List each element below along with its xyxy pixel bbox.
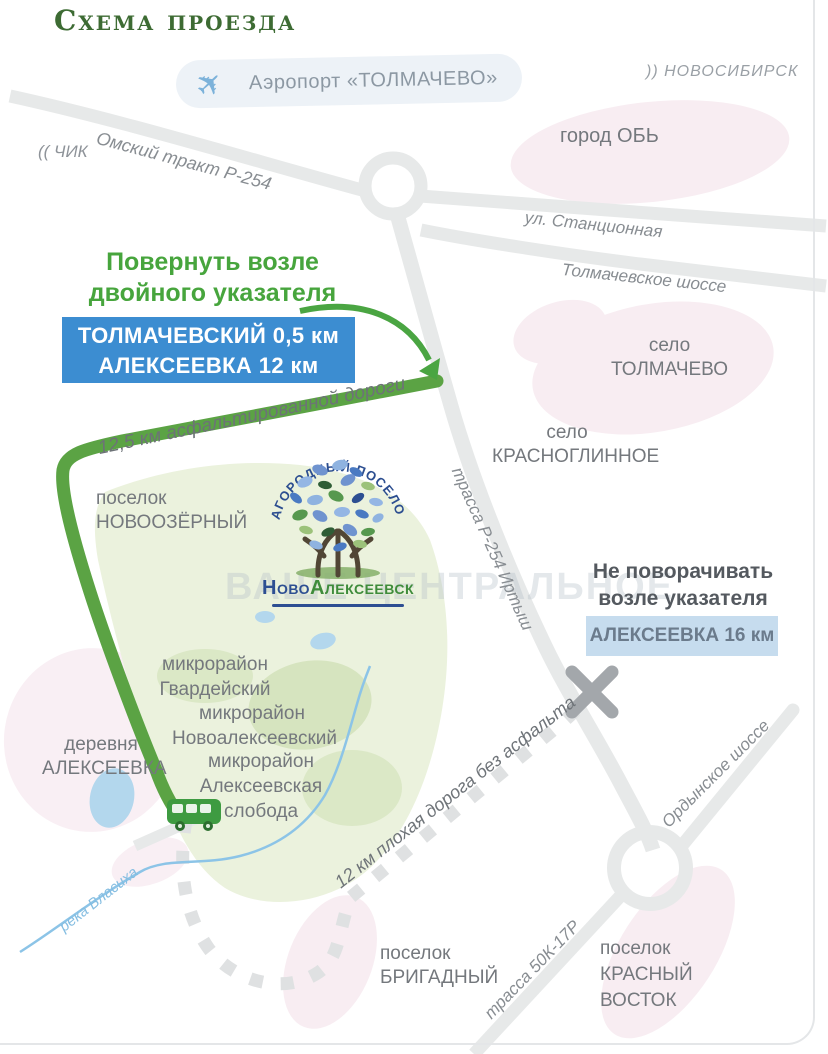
place-line: АЛЕКСЕЕВКА: [42, 757, 160, 781]
river-label: река Власиха: [45, 854, 153, 946]
place-line: ВОСТОК: [600, 988, 693, 1014]
logo-name-part1: Ново: [262, 577, 310, 599]
logo-underline: [272, 604, 404, 607]
place-line: ТОЛМАЧЕВО: [607, 358, 732, 382]
place-line: слобода: [196, 799, 326, 824]
road-label-omsky-trakt: Омский тракт Р-254: [94, 126, 274, 196]
place-label-brigadny: поселок БРИГАДНЫЙ: [380, 942, 498, 990]
place-line: деревня: [42, 733, 160, 757]
place-line: село: [492, 421, 642, 445]
place-label-novoalekseevsky: микрорайон Новоалексеевский: [172, 701, 332, 751]
place-label-krasny-vostok: поселок КРАСНЫЙ ВОСТОК: [600, 936, 693, 1014]
no-turn-line1: Не поворачивать: [585, 558, 781, 585]
airport-label: Аэропорт «ТОЛМАЧЕВО»: [249, 66, 498, 94]
place-label-ob: город ОБЬ: [560, 124, 659, 148]
logo-name: НовоАлексеевск: [252, 577, 424, 600]
no-turn-instruction: Не поворачивать возле указателя: [585, 558, 781, 612]
page-title: Схема проезда: [54, 4, 296, 37]
place-label-sloboda: микрорайон Алексеевская слобода: [196, 749, 326, 824]
no-turn-line2: возле указателя: [585, 585, 781, 612]
road-label-tolmachevskoe: Толмачевское шоссе: [560, 258, 727, 299]
road-sign-turn: ТОЛМАЧЕВСКИЙ 0,5 км АЛЕКСЕЕВКА 12 км: [62, 317, 355, 383]
place-line: микрорайон: [196, 749, 326, 774]
offmap-novosibirsk: )) НОВОСИБИРСК: [646, 60, 798, 84]
turn-instruction-line1: Повернуть возле: [70, 247, 355, 278]
place-label-krasnoglinnoe: село КРАСНОГЛИННОЕ: [492, 421, 642, 469]
road-label-r254: трасса Р-254 Иртыш: [444, 460, 541, 638]
road-label-ordynskoe: Ордынское шоссе: [649, 707, 783, 841]
airport-pill: ✈ Аэропорт «ТОЛМАЧЕВО»: [176, 53, 523, 108]
place-line: НОВООЗЁРНЫЙ: [96, 511, 247, 535]
logo-name-part2: Алексеевск: [310, 577, 414, 599]
road-label-asphalt: 12,5 км асфальтированной дороги: [96, 373, 404, 461]
place-line: поселок: [380, 942, 498, 966]
airplane-icon: ✈: [187, 61, 233, 107]
place-line: КРАСНОГЛИННОЕ: [492, 445, 642, 469]
place-line: Гвардейский: [150, 677, 280, 702]
place-line: село: [607, 334, 732, 358]
turn-instruction-line2: двойного указателя: [70, 278, 355, 309]
road-label-stantsionnaya: ул. Станционная: [523, 206, 663, 244]
turn-instruction: Повернуть возле двойного указателя: [70, 247, 355, 309]
place-line: БРИГАДНЫЙ: [380, 966, 498, 990]
place-label-tolmachevo: село ТОЛМАЧЕВО: [607, 334, 732, 382]
place-line: Новоалексеевский: [172, 726, 332, 751]
map-page: ВАШЕ ЦЕНТРАЛЬНОЕ ЗАГОРОДНЫЙ ПОСЕЛОК: [0, 0, 828, 1054]
place-line: Алексеевская: [196, 774, 326, 799]
offmap-chik: (( ЧИК: [38, 140, 88, 164]
place-label-alekseevka: деревня АЛЕКСЕЕВКА: [42, 733, 160, 781]
place-line: поселок: [600, 936, 693, 962]
place-label-gvardeysky: микрорайон Гвардейский: [150, 652, 280, 702]
road-sign-turn-line1: ТОЛМАЧЕВСКИЙ 0,5 км: [62, 321, 355, 351]
place-line: КРАСНЫЙ: [600, 962, 693, 988]
road-label-dirt: 12 км плохая дорога без асфальта: [329, 690, 580, 894]
place-label-novoozerny: поселок НОВООЗЁРНЫЙ: [96, 487, 247, 535]
labels-layer: Схема проезда ✈ Аэропорт «ТОЛМАЧЕВО» )) …: [0, 0, 828, 1054]
place-line: поселок: [96, 487, 247, 511]
road-sign-no-turn: АЛЕКСЕЕВКА 16 км: [586, 616, 778, 656]
road-sign-turn-line2: АЛЕКСЕЕВКА 12 км: [62, 351, 355, 381]
place-line: микрорайон: [150, 652, 280, 677]
place-line: микрорайон: [172, 701, 332, 726]
